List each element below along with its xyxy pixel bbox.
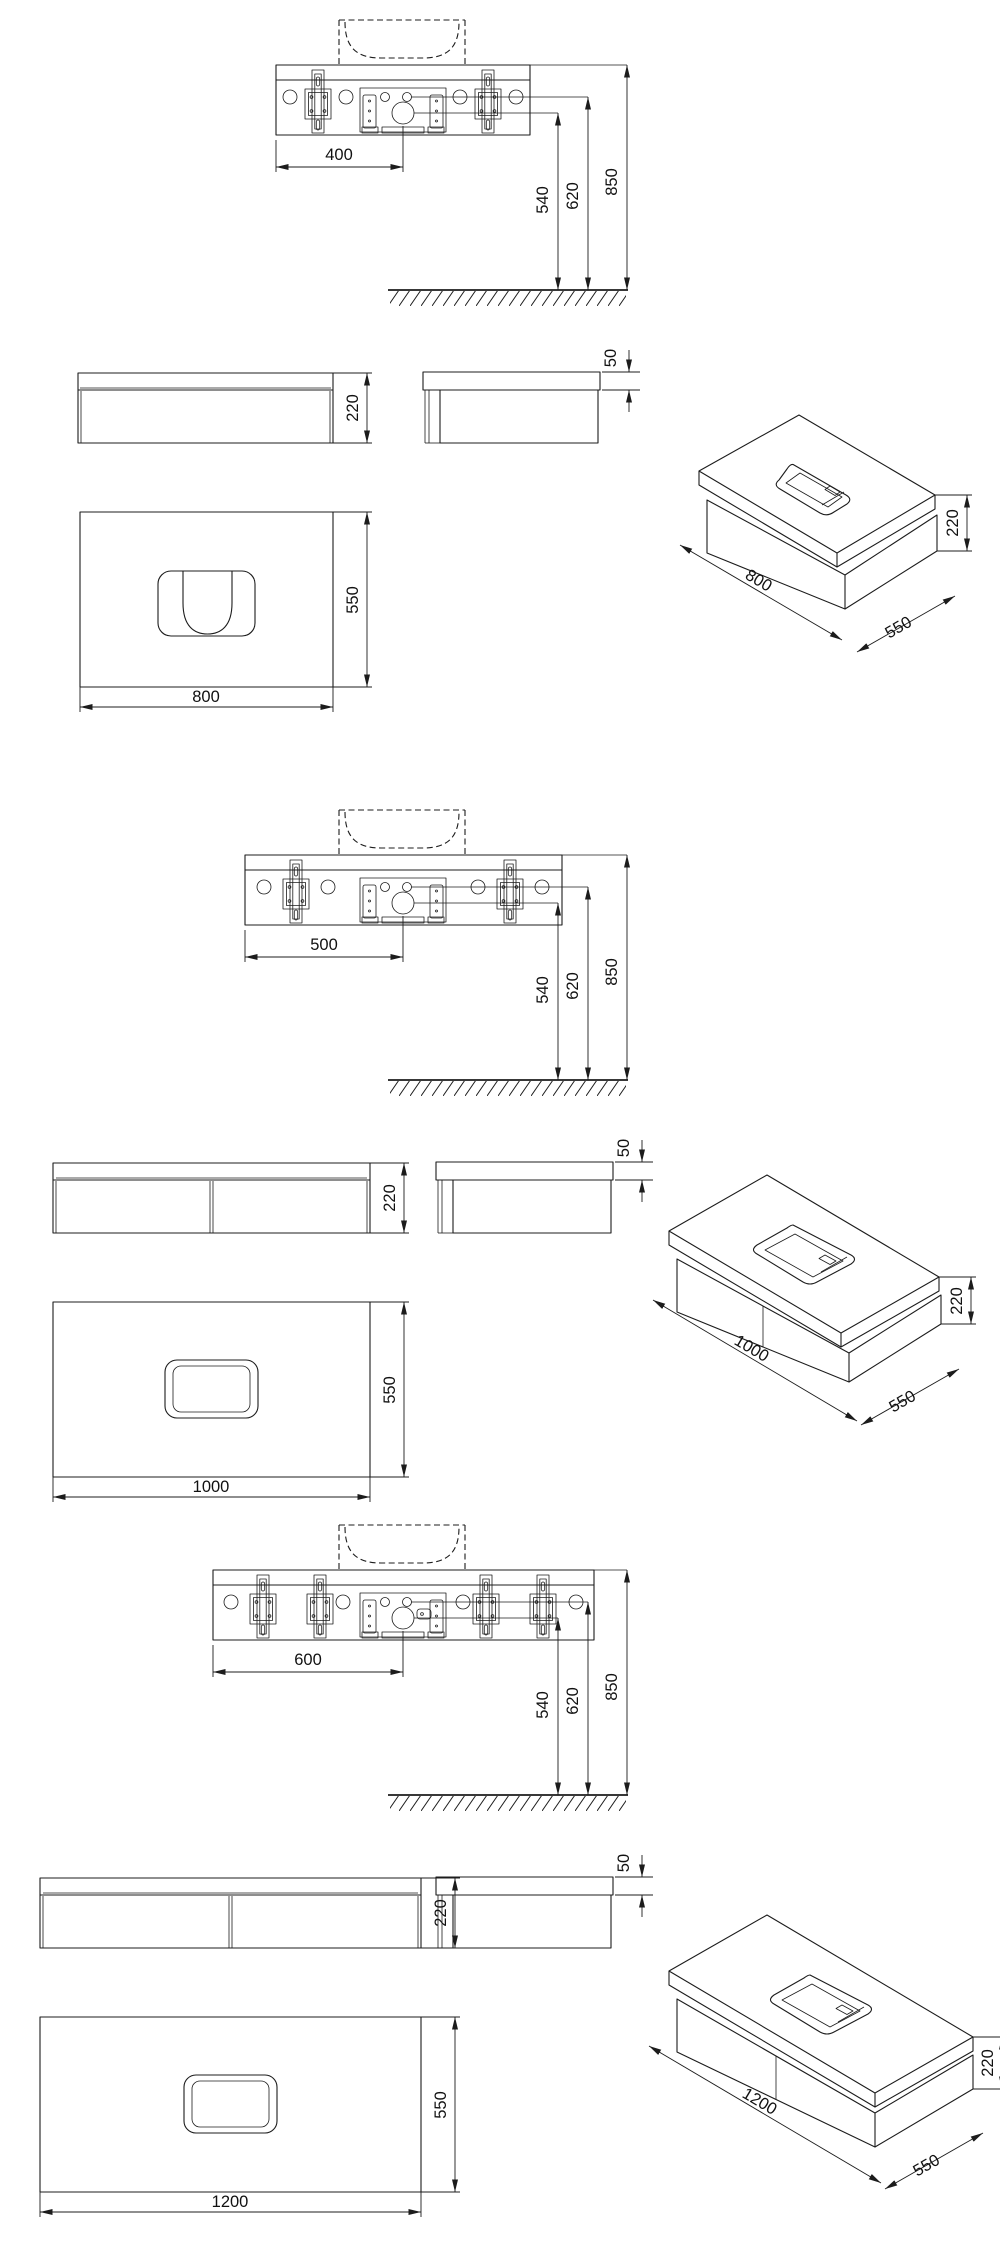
cabinet-front [53, 1163, 370, 1233]
fixing-hole [224, 1595, 238, 1609]
iso-side-face [849, 1295, 941, 1382]
basin-bowl [173, 1366, 250, 1412]
dim-label: 220 [979, 2049, 997, 2077]
dim-label: 550 [381, 1376, 399, 1404]
dim-height: 220 [370, 1163, 409, 1233]
dim-label: 600 [294, 1651, 322, 1669]
fixing-hole [336, 1595, 350, 1609]
cabinet-side [453, 1180, 611, 1233]
dim-iso-depth: 550 [857, 596, 955, 652]
dim-label: 500 [310, 936, 338, 954]
dim-label: 620 [564, 182, 582, 210]
fixing-hole [283, 90, 297, 104]
dim-worktop-thickness: 50 [602, 349, 640, 412]
dim-label: 50 [602, 349, 620, 367]
dim-label: 550 [886, 1387, 919, 1416]
installation-view-1000: 500 540 620 850 [200, 790, 660, 1120]
dim-trap-height: 540 [534, 903, 558, 1080]
dim-iso-width: 1200 [649, 2046, 881, 2183]
isometric-view-800: 800 550 220 [650, 400, 995, 670]
dim-outlet-height: 620 [564, 1602, 588, 1795]
dim-label: 1000 [731, 1332, 772, 1366]
worktop-plan [53, 1302, 370, 1477]
iso-basin-recess [771, 1975, 872, 2034]
dim-iso-height: 220 [935, 495, 972, 551]
dim-height: 220 [333, 373, 372, 443]
worktop-plan [40, 2017, 421, 2192]
dim-mounting-height: 850 [603, 1570, 627, 1795]
dim-label: 540 [534, 1691, 552, 1719]
dim-iso-width: 800 [680, 545, 842, 640]
wall-rail [276, 65, 530, 80]
dim-width: 800 [80, 687, 333, 712]
dim-label: 50 [615, 1854, 633, 1872]
dim-center-offset: 500 [245, 916, 403, 962]
dim-outlet-height: 620 [564, 887, 588, 1080]
dim-label: 220 [944, 509, 962, 537]
worktop-plan [80, 512, 333, 687]
dim-label: 220 [344, 394, 362, 422]
cabinet-side [440, 390, 598, 443]
dim-label: 550 [910, 2151, 943, 2180]
installation-view-1200: 600 540 620 850 [200, 1505, 660, 1835]
isometric-view-1000: 1000 550 220 [635, 1160, 995, 1450]
front-elevation-800: 220 [60, 360, 380, 460]
basin-cutout [165, 1360, 258, 1418]
dim-label: 220 [381, 1184, 399, 1212]
dim-label: 850 [603, 168, 621, 196]
front-elevation-1000: 220 [20, 1150, 440, 1250]
dim-iso-width: 1000 [653, 1300, 857, 1421]
dim-label: 220 [948, 1287, 966, 1315]
plan-view-1000: 550 1000 [20, 1290, 450, 1525]
cabinet-front [40, 1878, 421, 1948]
cabinet-side [453, 1895, 611, 1948]
fixing-hole [339, 90, 353, 104]
dim-depth: 550 [333, 512, 372, 687]
dim-label: 550 [882, 613, 915, 642]
basin-bowl [183, 571, 232, 634]
dim-label: 540 [534, 976, 552, 1004]
iso-side-face [845, 515, 937, 609]
iso-side-face [875, 2055, 973, 2147]
basin-cutout [158, 571, 255, 636]
dim-label: 1200 [212, 2193, 249, 2211]
dim-label: 1000 [193, 1478, 230, 1496]
dim-mounting-height: 850 [603, 65, 627, 290]
dim-width: 1200 [40, 2192, 421, 2217]
fixing-hole [257, 880, 271, 894]
dim-label: 400 [325, 146, 353, 164]
dim-depth: 550 [370, 1302, 409, 1477]
iso-basin-recess [776, 465, 850, 515]
basin-cutout [184, 2075, 277, 2133]
dim-label: 800 [192, 688, 220, 706]
side-view-1000: 50 [420, 1120, 670, 1255]
fixing-hole [321, 880, 335, 894]
worktop-side [423, 372, 600, 390]
side-view-800: 50 [410, 330, 660, 465]
cabinet-front [78, 373, 333, 443]
dim-label: 1200 [739, 2085, 780, 2119]
dim-iso-height: 220 [973, 2037, 1000, 2089]
dim-depth: 550 [421, 2017, 460, 2192]
worktop-side [436, 1162, 613, 1180]
iso-top-face [669, 1915, 973, 2093]
dim-label: 540 [534, 186, 552, 214]
dim-trap-height: 540 [534, 1618, 558, 1795]
dim-width: 1000 [53, 1477, 370, 1502]
dim-label: 550 [432, 2091, 450, 2119]
isometric-view-1200: 1200 550 220 [625, 1900, 1000, 2200]
dim-iso-depth: 550 [861, 1369, 959, 1425]
dim-label: 620 [564, 972, 582, 1000]
worktop-side [436, 1877, 613, 1895]
spec-sheet: 400 540 620 850 220 50 5 [0, 0, 1000, 2264]
iso-top-face [699, 415, 935, 553]
dim-trap-height: 540 [534, 113, 558, 290]
dim-label: 850 [603, 958, 621, 986]
installation-view-800: 400 540 620 850 [200, 0, 660, 330]
dim-iso-height: 220 [939, 1277, 976, 1324]
dim-outlet-height: 620 [564, 97, 588, 290]
plan-view-800: 550 800 [60, 500, 380, 735]
dim-label: 620 [564, 1687, 582, 1715]
plan-view-1200: 550 1200 [20, 2005, 490, 2240]
dim-label: 800 [742, 566, 775, 595]
dim-iso-depth: 550 [885, 2133, 983, 2189]
basin-bowl [192, 2081, 269, 2127]
dim-label: 50 [615, 1139, 633, 1157]
iso-top-face [669, 1175, 939, 1333]
dim-label: 550 [344, 586, 362, 614]
dim-label: 850 [603, 1673, 621, 1701]
iso-basin-recess [754, 1225, 855, 1284]
dim-mounting-height: 850 [603, 855, 627, 1080]
